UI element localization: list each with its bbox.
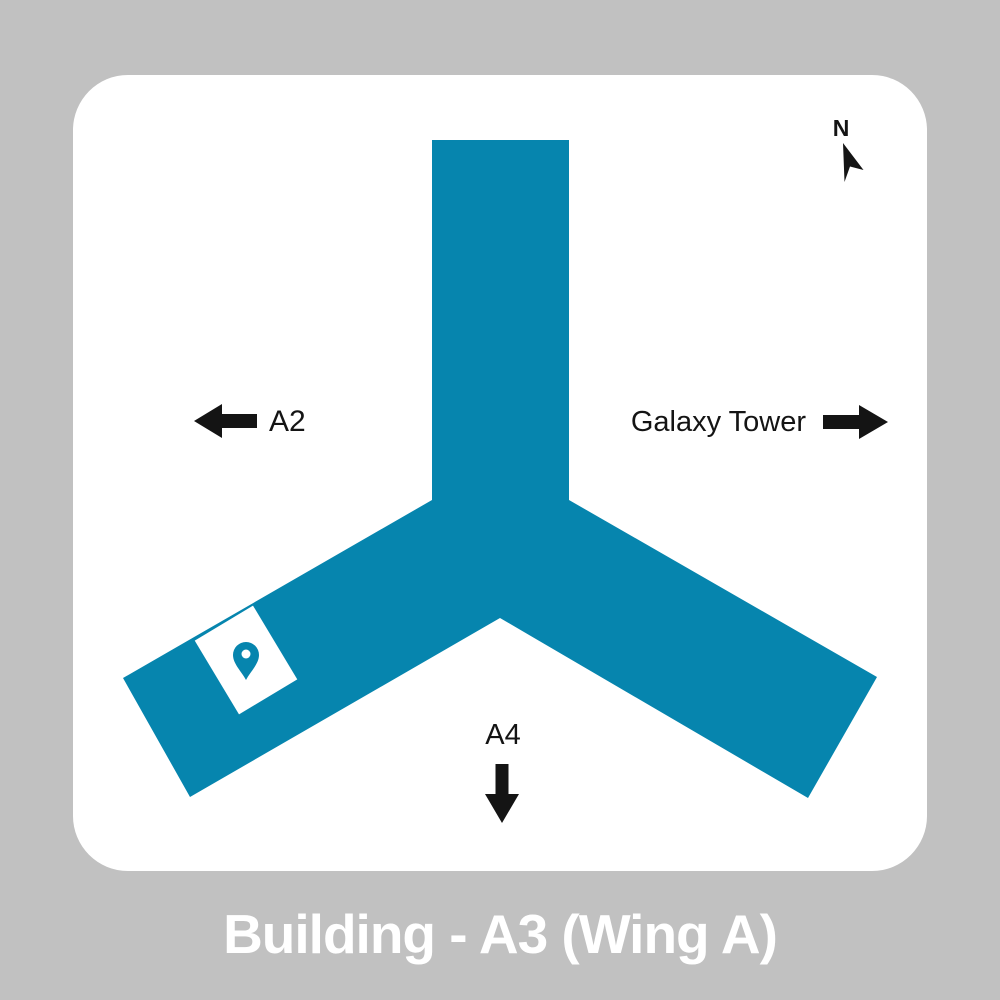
direction-label-south: A4 <box>485 720 520 752</box>
north-arrow-icon <box>843 143 864 182</box>
site-map <box>0 0 1000 1000</box>
arrow-left-icon <box>194 404 257 438</box>
page-title: Building - A3 (Wing A) <box>223 902 777 966</box>
arrow-right-icon <box>823 405 888 439</box>
direction-label-west: A2 <box>269 405 306 438</box>
direction-label-east: Galaxy Tower <box>631 407 806 439</box>
arrow-down-icon <box>485 764 519 823</box>
map-poster: N A2 Galaxy Tower A4 Building - A3 (Wing… <box>0 0 1000 1000</box>
compass-north-label: N <box>833 116 850 141</box>
